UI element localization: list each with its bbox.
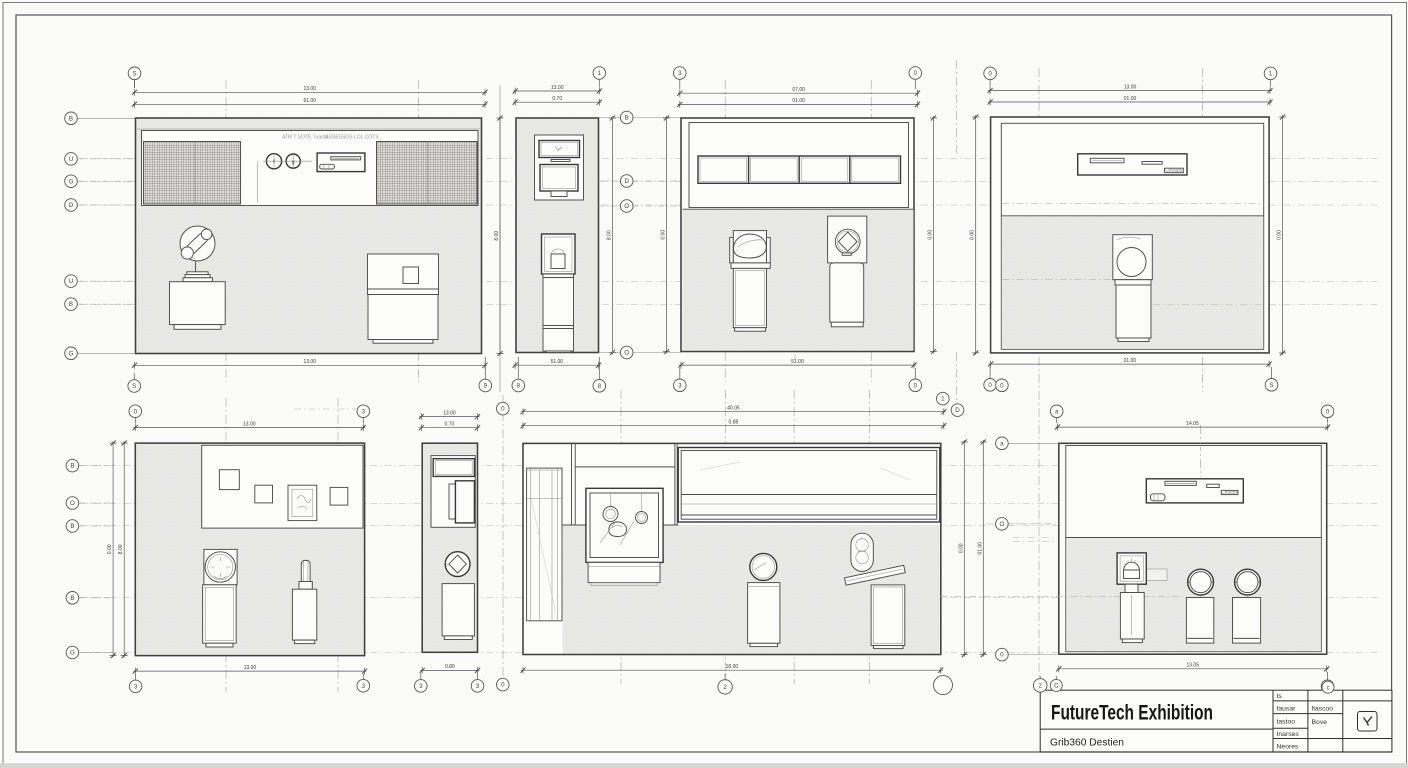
svg-text:0: 0 (914, 70, 918, 77)
svg-text:fiascoo: fiascoo (1312, 706, 1334, 713)
svg-text:g: g (292, 159, 295, 165)
svg-text:1: 1 (941, 396, 945, 403)
svg-text:01.00: 01.00 (792, 98, 805, 104)
svg-text:G: G (69, 178, 74, 185)
svg-text:D: D (955, 407, 960, 414)
svg-text:13.00: 13.00 (443, 410, 456, 416)
svg-text:13.00: 13.00 (551, 85, 564, 91)
svg-text:0: 0 (988, 382, 992, 389)
svg-text:13.00: 13.00 (243, 421, 256, 427)
svg-text:3: 3 (362, 683, 366, 690)
svg-text:S: S (132, 70, 136, 77)
svg-text:B: B (69, 115, 73, 122)
svg-text:O: O (624, 350, 629, 357)
svg-text:0.70: 0.70 (552, 96, 562, 102)
svg-text:0: 0 (988, 71, 992, 78)
svg-text:FutureTech Exhibition: FutureTech Exhibition (1051, 702, 1213, 725)
svg-text:1: 1 (1269, 71, 1273, 78)
svg-text:0.88: 0.88 (729, 420, 739, 426)
svg-text:G: G (69, 350, 74, 357)
svg-text:0.00: 0.00 (928, 230, 934, 240)
svg-text:3: 3 (134, 684, 138, 691)
svg-text:13.00: 13.00 (1124, 84, 1137, 90)
svg-text:G: G (70, 650, 75, 657)
svg-text:3: 3 (678, 70, 682, 77)
svg-text:c: c (1326, 684, 1329, 691)
svg-text:U: U (69, 278, 73, 285)
svg-text:13.05: 13.05 (1186, 663, 1199, 669)
svg-text:40.05: 40.05 (727, 406, 740, 412)
svg-text:8: 8 (598, 383, 602, 390)
svg-text:07.00: 07.00 (792, 87, 805, 93)
svg-text:Cmsdts: Cmsdts (1165, 168, 1182, 174)
svg-text:0: 0 (1326, 408, 1330, 415)
svg-text:0: 0 (501, 682, 505, 689)
svg-text:B: B (69, 301, 73, 308)
svg-text:51.00: 51.00 (551, 359, 564, 365)
svg-text:0.00: 0.00 (970, 230, 976, 240)
svg-text:U: U (69, 156, 73, 163)
svg-text:13.00: 13.00 (303, 359, 316, 365)
svg-text:8.00: 8.00 (494, 231, 500, 241)
svg-text:3: 3 (362, 408, 366, 415)
svg-text:Neores: Neores (1277, 743, 1300, 750)
svg-text:fausar: fausar (1277, 706, 1297, 713)
svg-text:0: 0 (1000, 382, 1004, 389)
svg-text:1: 1 (598, 70, 602, 77)
svg-text:13.00: 13.00 (303, 86, 316, 92)
svg-text:B: B (70, 595, 74, 602)
svg-text:01.00: 01.00 (977, 542, 983, 555)
svg-text:01.00: 01.00 (1124, 96, 1137, 102)
svg-text:ASSESSOS LOL COTS: ASSESSOS LOL COTS (325, 135, 379, 141)
svg-text:0.00: 0.00 (107, 544, 113, 554)
svg-text:8: 8 (517, 383, 521, 390)
svg-text:0.80: 0.80 (445, 664, 455, 670)
svg-text:O: O (70, 500, 75, 507)
svg-text:D: D (69, 202, 74, 209)
svg-text:S: S (132, 383, 136, 390)
svg-text:C: C (1054, 683, 1059, 690)
svg-text:tastoo: tastoo (1277, 719, 1296, 726)
svg-text:D: D (624, 178, 629, 185)
svg-text:B: B (70, 523, 74, 530)
svg-text:O: O (624, 203, 629, 210)
svg-text:2: 2 (1038, 683, 1042, 690)
svg-text:3: 3 (476, 683, 480, 690)
svg-text:a: a (1055, 408, 1059, 415)
svg-text:3: 3 (678, 382, 682, 389)
svg-text:13.00: 13.00 (244, 665, 257, 671)
svg-text:0: 0 (134, 408, 138, 415)
svg-text:B: B (70, 463, 74, 470)
svg-text:8.00: 8.00 (118, 544, 124, 554)
svg-text:01.00: 01.00 (1124, 358, 1137, 364)
svg-text:Cmsdts: Cmsdts (1221, 490, 1238, 496)
svg-text:Grib360 Destien: Grib360 Destien (1050, 737, 1124, 749)
svg-text:O: O (999, 521, 1004, 528)
svg-text:8.00: 8.00 (607, 230, 613, 240)
svg-text:14.05: 14.05 (1186, 421, 1199, 427)
svg-text:0: 0 (1000, 652, 1004, 659)
svg-text:0: 0 (501, 406, 505, 413)
svg-text:18.00: 18.00 (726, 664, 739, 670)
svg-text:S: S (1269, 382, 1273, 389)
svg-text:0: 0 (914, 382, 918, 389)
svg-text:2: 2 (723, 684, 727, 691)
svg-text:ts: ts (1277, 693, 1283, 700)
svg-text:0.00: 0.00 (958, 543, 964, 553)
svg-text:61.00: 61.00 (303, 98, 316, 104)
svg-text:ATM T SOTE Tuards: ATM T SOTE Tuards (282, 135, 329, 141)
svg-text:0.00: 0.00 (1277, 230, 1283, 240)
svg-text:B: B (625, 115, 629, 122)
svg-text:Inarses: Inarses (1277, 731, 1300, 738)
svg-text:0.70: 0.70 (445, 422, 455, 428)
svg-text:51.00: 51.00 (791, 359, 804, 365)
svg-text:Bove: Bove (1312, 719, 1328, 726)
svg-text:a: a (1000, 440, 1004, 447)
svg-text:0.00: 0.00 (661, 230, 667, 240)
svg-text:9: 9 (484, 383, 488, 390)
svg-text:3: 3 (419, 683, 423, 690)
